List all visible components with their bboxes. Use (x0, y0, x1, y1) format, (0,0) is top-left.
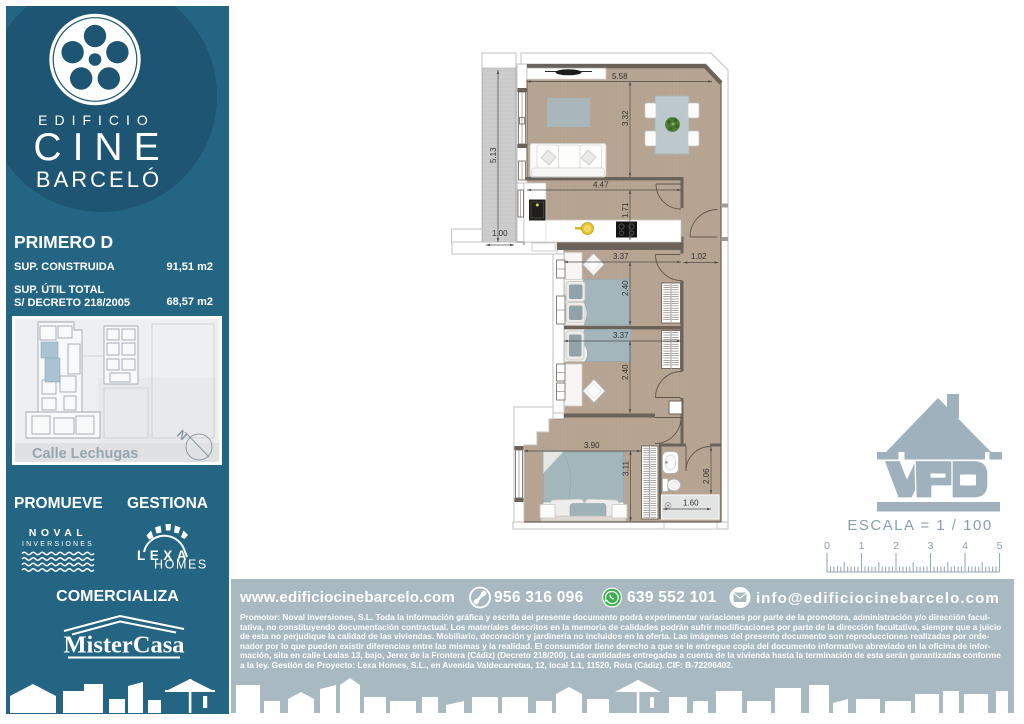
svg-text:5: 5 (997, 540, 1003, 552)
svg-text:1.60: 1.60 (683, 499, 699, 508)
svg-text:1.00: 1.00 (492, 229, 508, 238)
svg-text:1.71: 1.71 (621, 202, 630, 218)
svg-text:1: 1 (859, 540, 865, 552)
svg-text:3.11: 3.11 (622, 460, 631, 476)
svg-text:1.02: 1.02 (691, 252, 707, 261)
svg-text:3: 3 (928, 540, 934, 552)
svg-text:3.37: 3.37 (613, 252, 629, 261)
svg-text:5.13: 5.13 (489, 147, 498, 163)
svg-text:2: 2 (893, 540, 899, 552)
svg-text:3.32: 3.32 (621, 110, 630, 126)
svg-text:4.47: 4.47 (593, 181, 609, 190)
svg-text:2.40: 2.40 (621, 364, 630, 380)
svg-text:4: 4 (962, 540, 968, 552)
svg-text:5.58: 5.58 (612, 72, 628, 81)
svg-text:2.06: 2.06 (702, 468, 711, 484)
svg-text:3.90: 3.90 (584, 441, 600, 450)
svg-text:2.40: 2.40 (621, 280, 630, 296)
svg-text:3.37: 3.37 (613, 331, 629, 340)
svg-text:0: 0 (824, 540, 830, 552)
